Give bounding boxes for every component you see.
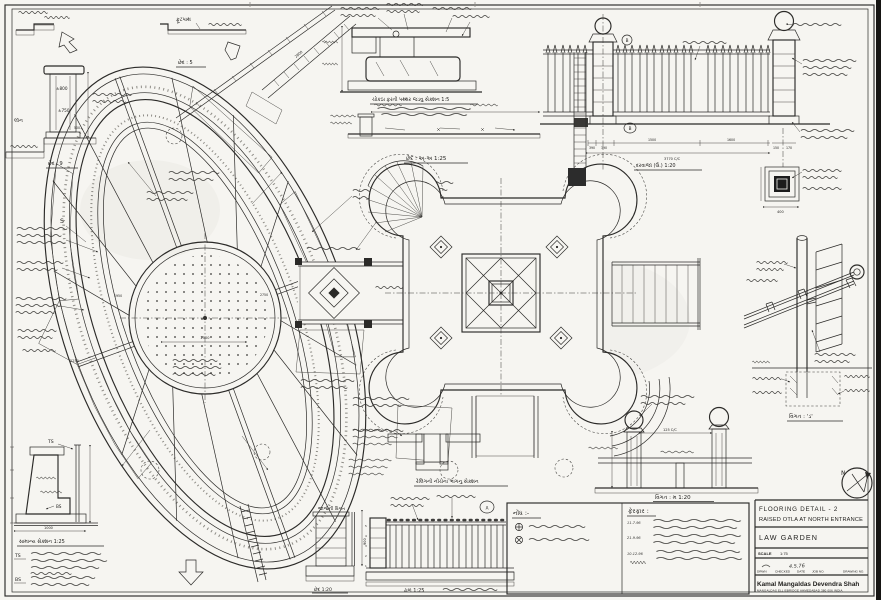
section9-caption: છેદ : 9 xyxy=(48,160,63,167)
north-label: N xyxy=(841,470,846,477)
dim-750: ±750 xyxy=(58,108,70,113)
architect-address: MANGALDAS ELLISBRIDGE AHMEDABAD 380 006 … xyxy=(757,589,843,593)
field-checked: CHECKED xyxy=(775,570,791,574)
architect-names: Kamal Mangaldas Devendra Shah xyxy=(757,581,859,588)
course-3: 3 xyxy=(365,544,367,548)
project-name: LAW GARDEN xyxy=(759,533,818,542)
dim-800: ±800 xyxy=(56,86,68,91)
bs-note-label: BS xyxy=(15,577,21,583)
dim-1600: 1600 xyxy=(727,138,735,142)
dim-390a: 390 xyxy=(589,146,595,150)
scan-edge xyxy=(876,0,881,600)
notes-header: નોંધ :- xyxy=(513,509,529,517)
handwritten-date: 4.5.76 xyxy=(789,563,805,570)
dim-3770: 3770 C/C xyxy=(664,157,681,161)
field-drwn: DRWN xyxy=(757,570,767,574)
detail-da-caption: વિગત : 'ડ' xyxy=(789,413,813,420)
dim-125cc: 125 C/C xyxy=(663,428,677,432)
circle-diameter-dim: 2500 xyxy=(201,336,210,340)
drawing-title-line2: RAISED OTLA AT NORTH ENTRANCE xyxy=(759,517,863,523)
ts-callout: TS xyxy=(47,439,54,445)
course-1: 1 xyxy=(365,564,367,568)
detail-ma-caption: વિગત : મ 1:20 xyxy=(655,494,691,501)
revision-date-3: 10-12-96 xyxy=(627,552,644,556)
ring-dim: 2750 xyxy=(260,293,268,297)
dim-150: 150 xyxy=(773,146,779,150)
field-job-no: JOB NO. xyxy=(812,570,825,574)
callout-s: S xyxy=(60,218,64,225)
dim-170: 170 xyxy=(786,146,792,150)
revisions-header: ફેરફાર : xyxy=(628,507,649,515)
dim-1500: 1500 xyxy=(648,138,656,142)
bs-callout: BS xyxy=(56,504,62,509)
callout-a: A xyxy=(486,506,489,511)
section-aa-caption: છેદ : અ-અ 1:25 xyxy=(406,155,447,162)
dim-500: 500 xyxy=(74,126,80,130)
ring-dim: 1950 xyxy=(114,294,122,298)
drawing-title-line1: FLOORING DETAIL - 2 xyxy=(759,506,838,513)
drawing-sheet: 2500 2250 1950 2750 S xyxy=(0,0,881,600)
ts-note-label: TS xyxy=(14,553,21,559)
revision-date-1: 11-7-96 xyxy=(627,521,641,525)
scale-value: 1:75 xyxy=(780,551,789,556)
dim-400: 400 xyxy=(777,210,784,214)
callout-b1: B xyxy=(626,38,629,43)
masonry-caption: ચોકઠા ફરતી પથ્થર જડવુ સેક્શન 1:5 xyxy=(372,96,449,103)
field-date: DATE xyxy=(797,570,805,574)
legend-tree-icon xyxy=(515,523,522,530)
dim-390b: 390 xyxy=(601,146,607,150)
architectural-drawing: 2500 2250 1950 2750 S xyxy=(0,0,881,600)
revision-date-2: 21-9-96 xyxy=(627,536,641,540)
dim-1000: 1000 xyxy=(44,526,53,530)
callout-b2: B xyxy=(629,126,632,131)
field-drawing-no: DRAWING NO. xyxy=(843,570,864,574)
lawn-label: લૉન xyxy=(14,117,23,124)
footpath-label: ફૂટપાથ xyxy=(176,17,191,24)
slope-caption: ઢાળ 1:25 xyxy=(404,588,424,594)
general-section-caption: સામાન્ય સેક્શન 1:25 xyxy=(19,538,65,545)
grill-caption: જાળીની વિગત xyxy=(318,505,345,512)
section5-caption: છેદ : 5 xyxy=(178,59,193,66)
ring-dim: 2250 xyxy=(70,359,79,363)
scale-label: SCALE xyxy=(758,551,772,556)
course-5: 5 xyxy=(365,524,367,528)
railing-under-caption: રેલિંગની નીચેના ભાગનુ સેક્શન xyxy=(416,478,479,485)
course-2: 2 xyxy=(365,554,367,558)
gate-caption: દરવાજા (ઉ.) 1:20 xyxy=(636,162,676,169)
course-4: 4 xyxy=(365,534,367,538)
